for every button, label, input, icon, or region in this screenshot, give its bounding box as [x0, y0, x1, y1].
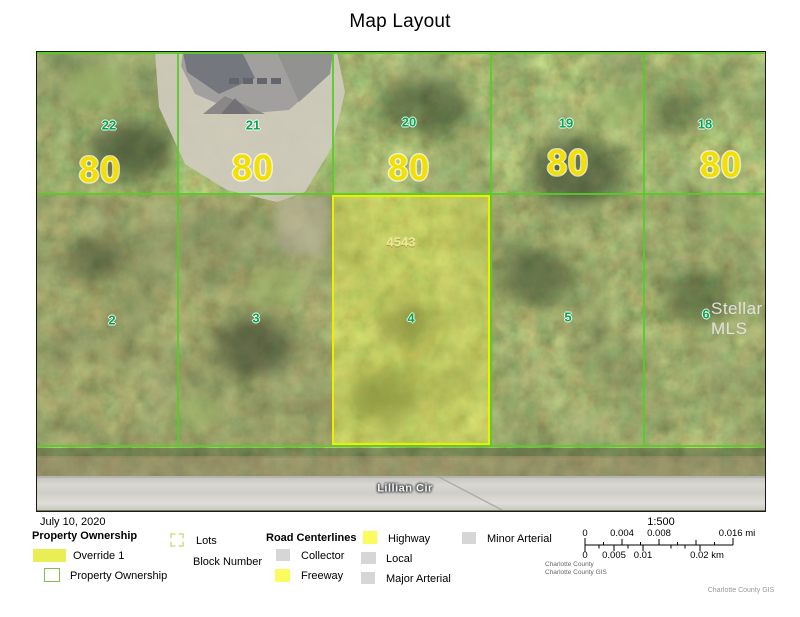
collector-swatch	[276, 549, 290, 561]
lot-number-20: 20	[402, 116, 416, 129]
legend-ownership-header: Property Ownership	[32, 530, 137, 542]
lot-number-19: 19	[559, 117, 573, 130]
scale-km-label-1: 0.005	[602, 550, 626, 561]
local-label: Local	[386, 553, 412, 565]
legend-date: July 10, 2020	[40, 516, 105, 528]
scale-km-label-3: 0.02 km	[690, 550, 724, 561]
minor-arterial-label: Minor Arterial	[487, 533, 552, 545]
major-arterial-swatch	[361, 572, 375, 584]
credit-text: Charlotte County Charlotte County GIS	[545, 561, 607, 577]
lot-number-3: 3	[252, 312, 259, 325]
local-swatch	[361, 552, 376, 564]
parcel-id-label: 4543	[387, 236, 416, 249]
ownership-label: Property Ownership	[70, 570, 167, 582]
scale-km-label-2: 0.01	[634, 550, 653, 561]
lot-width-label: 80	[700, 147, 742, 183]
minor-arterial-swatch	[462, 532, 476, 544]
ownership-swatch	[44, 568, 60, 582]
lot-number-21: 21	[246, 119, 260, 132]
block-number-label: Block Number	[193, 556, 262, 568]
footer-credit: Charlotte County GIS	[708, 587, 775, 594]
highway-swatch	[363, 531, 377, 544]
lot-number-4: 4	[407, 312, 414, 325]
major-arterial-label: Major Arterial	[386, 573, 451, 585]
lots-swatch	[170, 533, 184, 547]
freeway-label: Freeway	[301, 570, 343, 582]
map-canvas: 22 21 20 19 18 80 80 80 80 80 2 3 4 5 6 …	[36, 51, 766, 512]
map-layout-page: { "title": "Map Layout", "map": { "water…	[0, 0, 800, 617]
highway-label: Highway	[388, 533, 430, 545]
parcel-boundary-line	[490, 52, 492, 445]
override-label: Override 1	[73, 550, 124, 562]
parcel-boundary-line	[37, 52, 764, 54]
lot-number-6: 6	[702, 308, 709, 321]
lot-width-label: 80	[547, 145, 589, 181]
lot-width-label: 80	[79, 152, 121, 188]
lot-number-2: 2	[108, 314, 115, 327]
lot-number-22: 22	[102, 119, 116, 132]
parcel-boundary-line	[643, 52, 645, 445]
stellar-mls-watermark: Stellar MLS	[711, 299, 800, 339]
override-swatch	[33, 549, 66, 562]
page-title: Map Layout	[0, 11, 800, 33]
legend-roads-header: Road Centerlines	[266, 532, 356, 544]
lot-number-18: 18	[698, 118, 712, 131]
collector-label: Collector	[301, 550, 344, 562]
parcel-boundary-line	[37, 445, 764, 447]
lot-width-label: 80	[232, 150, 274, 186]
lot-number-5: 5	[564, 311, 571, 324]
freeway-swatch	[275, 569, 290, 582]
lots-label: Lots	[196, 535, 217, 547]
road-name-label: Lillian Cir	[377, 484, 433, 495]
parcel-boundary-line	[177, 52, 179, 445]
scale-ratio: 1:500	[647, 516, 675, 528]
lot-width-label: 80	[388, 150, 430, 186]
scale-km-label-0: 0	[582, 550, 587, 561]
